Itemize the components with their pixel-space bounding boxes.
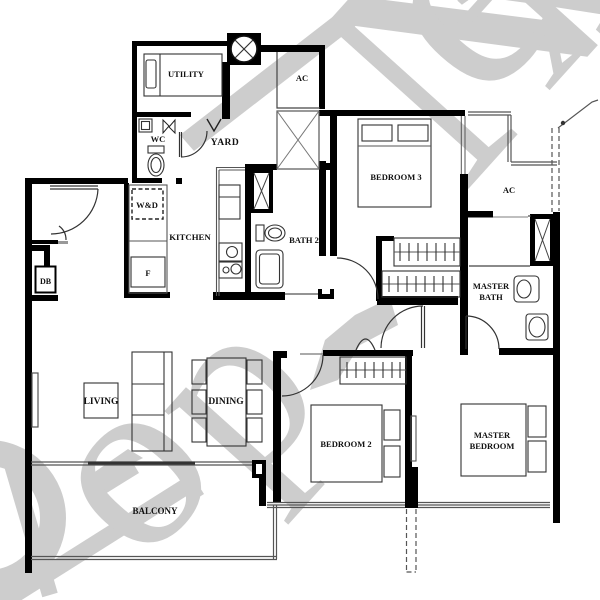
svg-text:BATH 2: BATH 2	[289, 235, 319, 245]
svg-text:YARD: YARD	[211, 138, 240, 148]
svg-text:UTILITY: UTILITY	[168, 69, 204, 79]
svg-text:AC: AC	[296, 73, 308, 83]
svg-text:WC: WC	[151, 134, 166, 144]
svg-text:BEDROOM: BEDROOM	[470, 441, 515, 451]
svg-text:KITCHEN: KITCHEN	[169, 232, 211, 242]
svg-text:AC: AC	[503, 185, 515, 195]
svg-text:W&D: W&D	[136, 200, 158, 210]
svg-text:BEDROOM 2: BEDROOM 2	[320, 439, 371, 449]
svg-text:DB: DB	[40, 277, 52, 286]
svg-text:LIVING: LIVING	[84, 397, 119, 407]
svg-text:F: F	[145, 268, 150, 278]
svg-text:MASTER: MASTER	[473, 281, 510, 291]
svg-text:BALCONY: BALCONY	[132, 506, 178, 516]
svg-text:DINING: DINING	[208, 397, 244, 407]
svg-text:BATH: BATH	[479, 292, 503, 302]
svg-text:MASTER: MASTER	[474, 430, 511, 440]
svg-text:BEDROOM 3: BEDROOM 3	[370, 172, 421, 182]
